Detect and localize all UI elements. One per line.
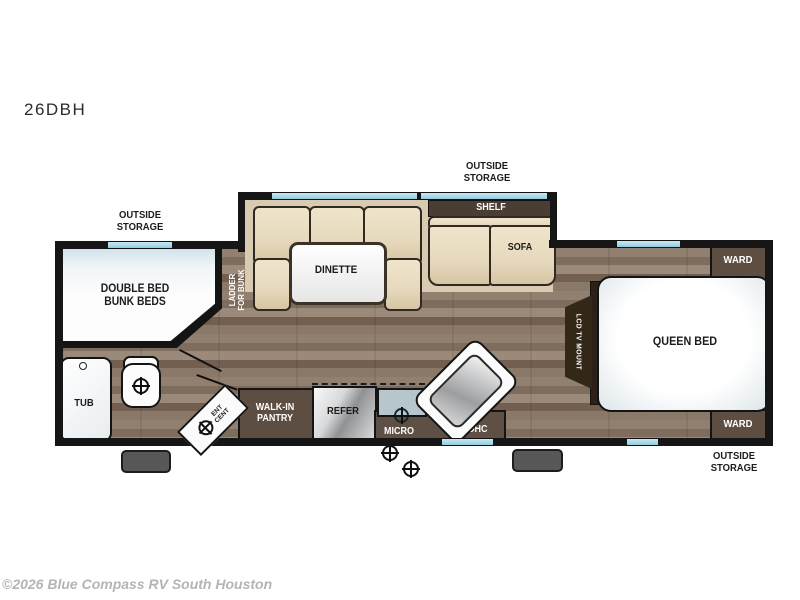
ladder-for-bunk-label: LADDER FOR BUNK	[224, 261, 250, 320]
tub-label: TUB	[64, 396, 104, 412]
lcd-tv-mount-label: LCD TV MOUNT	[574, 314, 583, 370]
ward-top-label: WARD	[715, 253, 762, 269]
sofa-seat-left	[428, 225, 492, 286]
ward-bottom-label: WARD	[715, 417, 762, 433]
shelf-label: SHELF	[436, 201, 546, 214]
burner-icon-1	[394, 408, 409, 423]
queen-bed-label: QUEEN BED	[636, 334, 735, 350]
outside-storage-label-top-left: OUTSIDE STORAGE	[100, 208, 181, 236]
entry-step-right	[512, 449, 563, 472]
wall-right	[765, 240, 773, 446]
refer-label: REFER	[317, 404, 369, 420]
speaker-icon	[195, 417, 216, 438]
outside-storage-label-top-center: OUTSIDE STORAGE	[447, 159, 528, 187]
ohc-dashed-line	[312, 383, 425, 385]
dinette-arm-cushion-left	[253, 258, 291, 311]
outside-storage-label-bottom-right: OUTSIDE STORAGE	[694, 449, 775, 477]
sofa-label: SOFA	[493, 240, 547, 254]
dinette-label: DINETTE	[296, 262, 377, 278]
window-kitchen-bottom	[442, 439, 493, 445]
sofa-seat-right	[489, 225, 556, 286]
bunk-beds-label: DOUBLE BED BUNK BEDS	[77, 278, 194, 314]
floorplan-page: 26DBH DOUBLE BED BUNK BEDS LADDER FOR BU…	[0, 0, 800, 600]
window-bedroom-bottom	[627, 439, 658, 445]
window-sofa-slide	[421, 193, 547, 199]
window-bedroom-top	[617, 241, 680, 247]
window-dinette-slide	[272, 193, 417, 199]
burner-icon-3	[403, 461, 419, 477]
tub-drain	[79, 362, 87, 370]
window-bunkroom	[108, 242, 172, 248]
burner-icon-2	[382, 445, 398, 461]
wall-bottom	[55, 438, 773, 446]
pantry-label: WALK-IN PANTRY	[244, 395, 307, 431]
lcd-tv-mount: LCD TV MOUNT	[565, 295, 592, 389]
page-title: 26DBH	[24, 100, 86, 120]
dinette-arm-cushion-right	[384, 258, 422, 311]
copyright-watermark: ©2026 Blue Compass RV South Houston	[2, 576, 272, 592]
entry-step-left	[121, 450, 171, 473]
micro-label: MICRO	[375, 425, 424, 438]
wall-left	[55, 241, 63, 446]
toilet-flush-icon	[133, 378, 149, 394]
